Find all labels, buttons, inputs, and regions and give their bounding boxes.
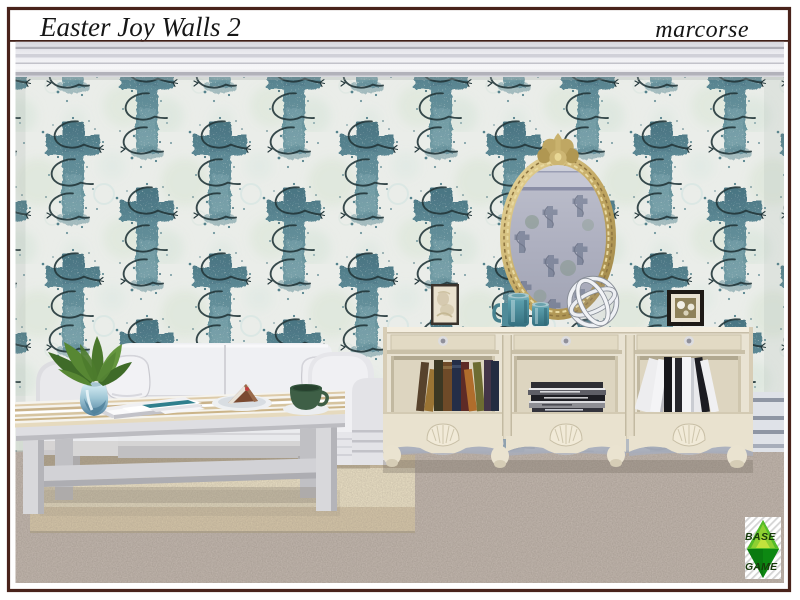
svg-text:GAME: GAME [745,561,778,573]
svg-text:marcorse: marcorse [655,17,749,43]
svg-text:BASE: BASE [745,531,776,543]
svg-text:Easter Joy Walls 2: Easter Joy Walls 2 [39,12,241,42]
